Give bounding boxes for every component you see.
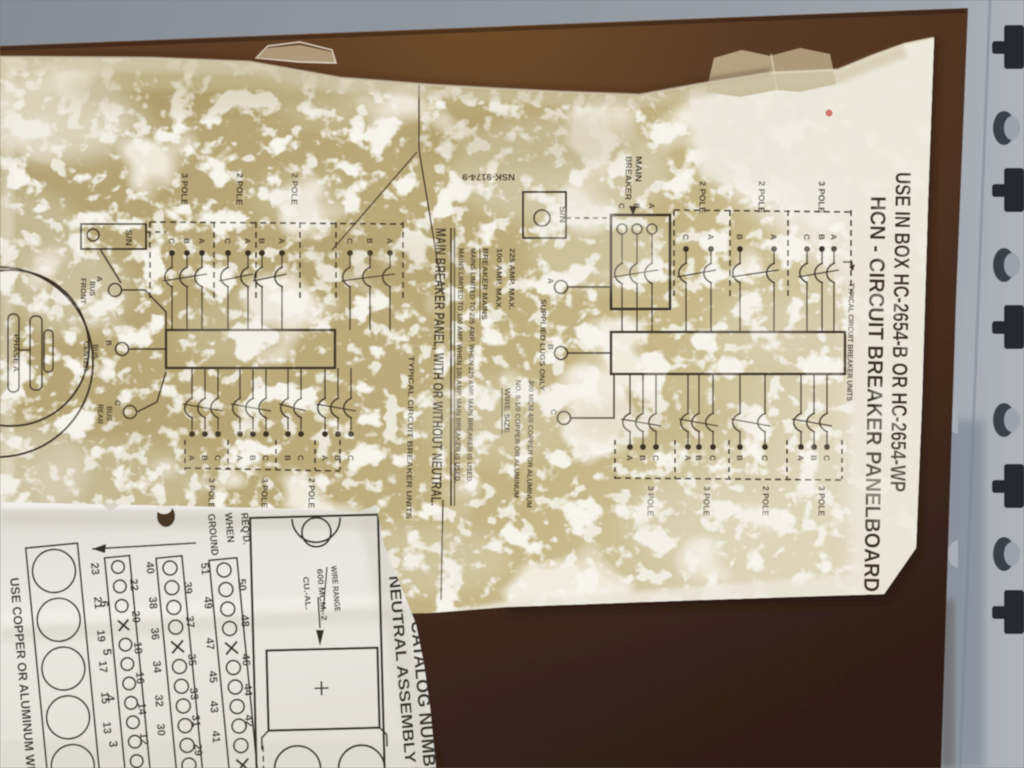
svg-text:39: 39: [181, 581, 194, 594]
svg-text:50: 50: [235, 578, 248, 591]
svg-text:36: 36: [148, 627, 161, 640]
svg-text:44: 44: [241, 683, 254, 697]
svg-text:17: 17: [96, 660, 109, 673]
svg-text:42: 42: [242, 714, 255, 727]
svg-text:13: 13: [100, 721, 113, 734]
svg-text:14: 14: [135, 702, 148, 716]
svg-text:31: 31: [189, 714, 202, 727]
svg-text:49: 49: [201, 596, 214, 609]
svg-text:37: 37: [183, 615, 196, 628]
svg-text:43: 43: [207, 700, 220, 713]
svg-text:33: 33: [187, 687, 200, 700]
svg-text:38: 38: [146, 596, 159, 609]
svg-text:51: 51: [198, 562, 211, 575]
svg-text:23: 23: [88, 562, 101, 575]
svg-text:48: 48: [238, 614, 251, 627]
svg-text:12: 12: [137, 732, 150, 745]
svg-text:15: 15: [98, 691, 111, 704]
svg-text:20: 20: [129, 610, 142, 623]
svg-text:41: 41: [209, 730, 222, 743]
svg-text:34: 34: [150, 660, 163, 674]
svg-text:46: 46: [239, 653, 252, 666]
svg-text:35: 35: [185, 653, 198, 666]
svg-text:21: 21: [91, 596, 104, 609]
svg-text:32: 32: [152, 694, 165, 707]
svg-text:29: 29: [191, 743, 204, 756]
svg-text:19: 19: [94, 629, 107, 642]
svg-text:47: 47: [203, 637, 216, 650]
svg-text:40: 40: [143, 561, 156, 574]
svg-text:30: 30: [154, 723, 167, 736]
svg-text:18: 18: [131, 641, 144, 654]
svg-text:45: 45: [206, 670, 219, 683]
svg-text:16: 16: [133, 671, 146, 684]
svg-text:22: 22: [127, 578, 140, 591]
